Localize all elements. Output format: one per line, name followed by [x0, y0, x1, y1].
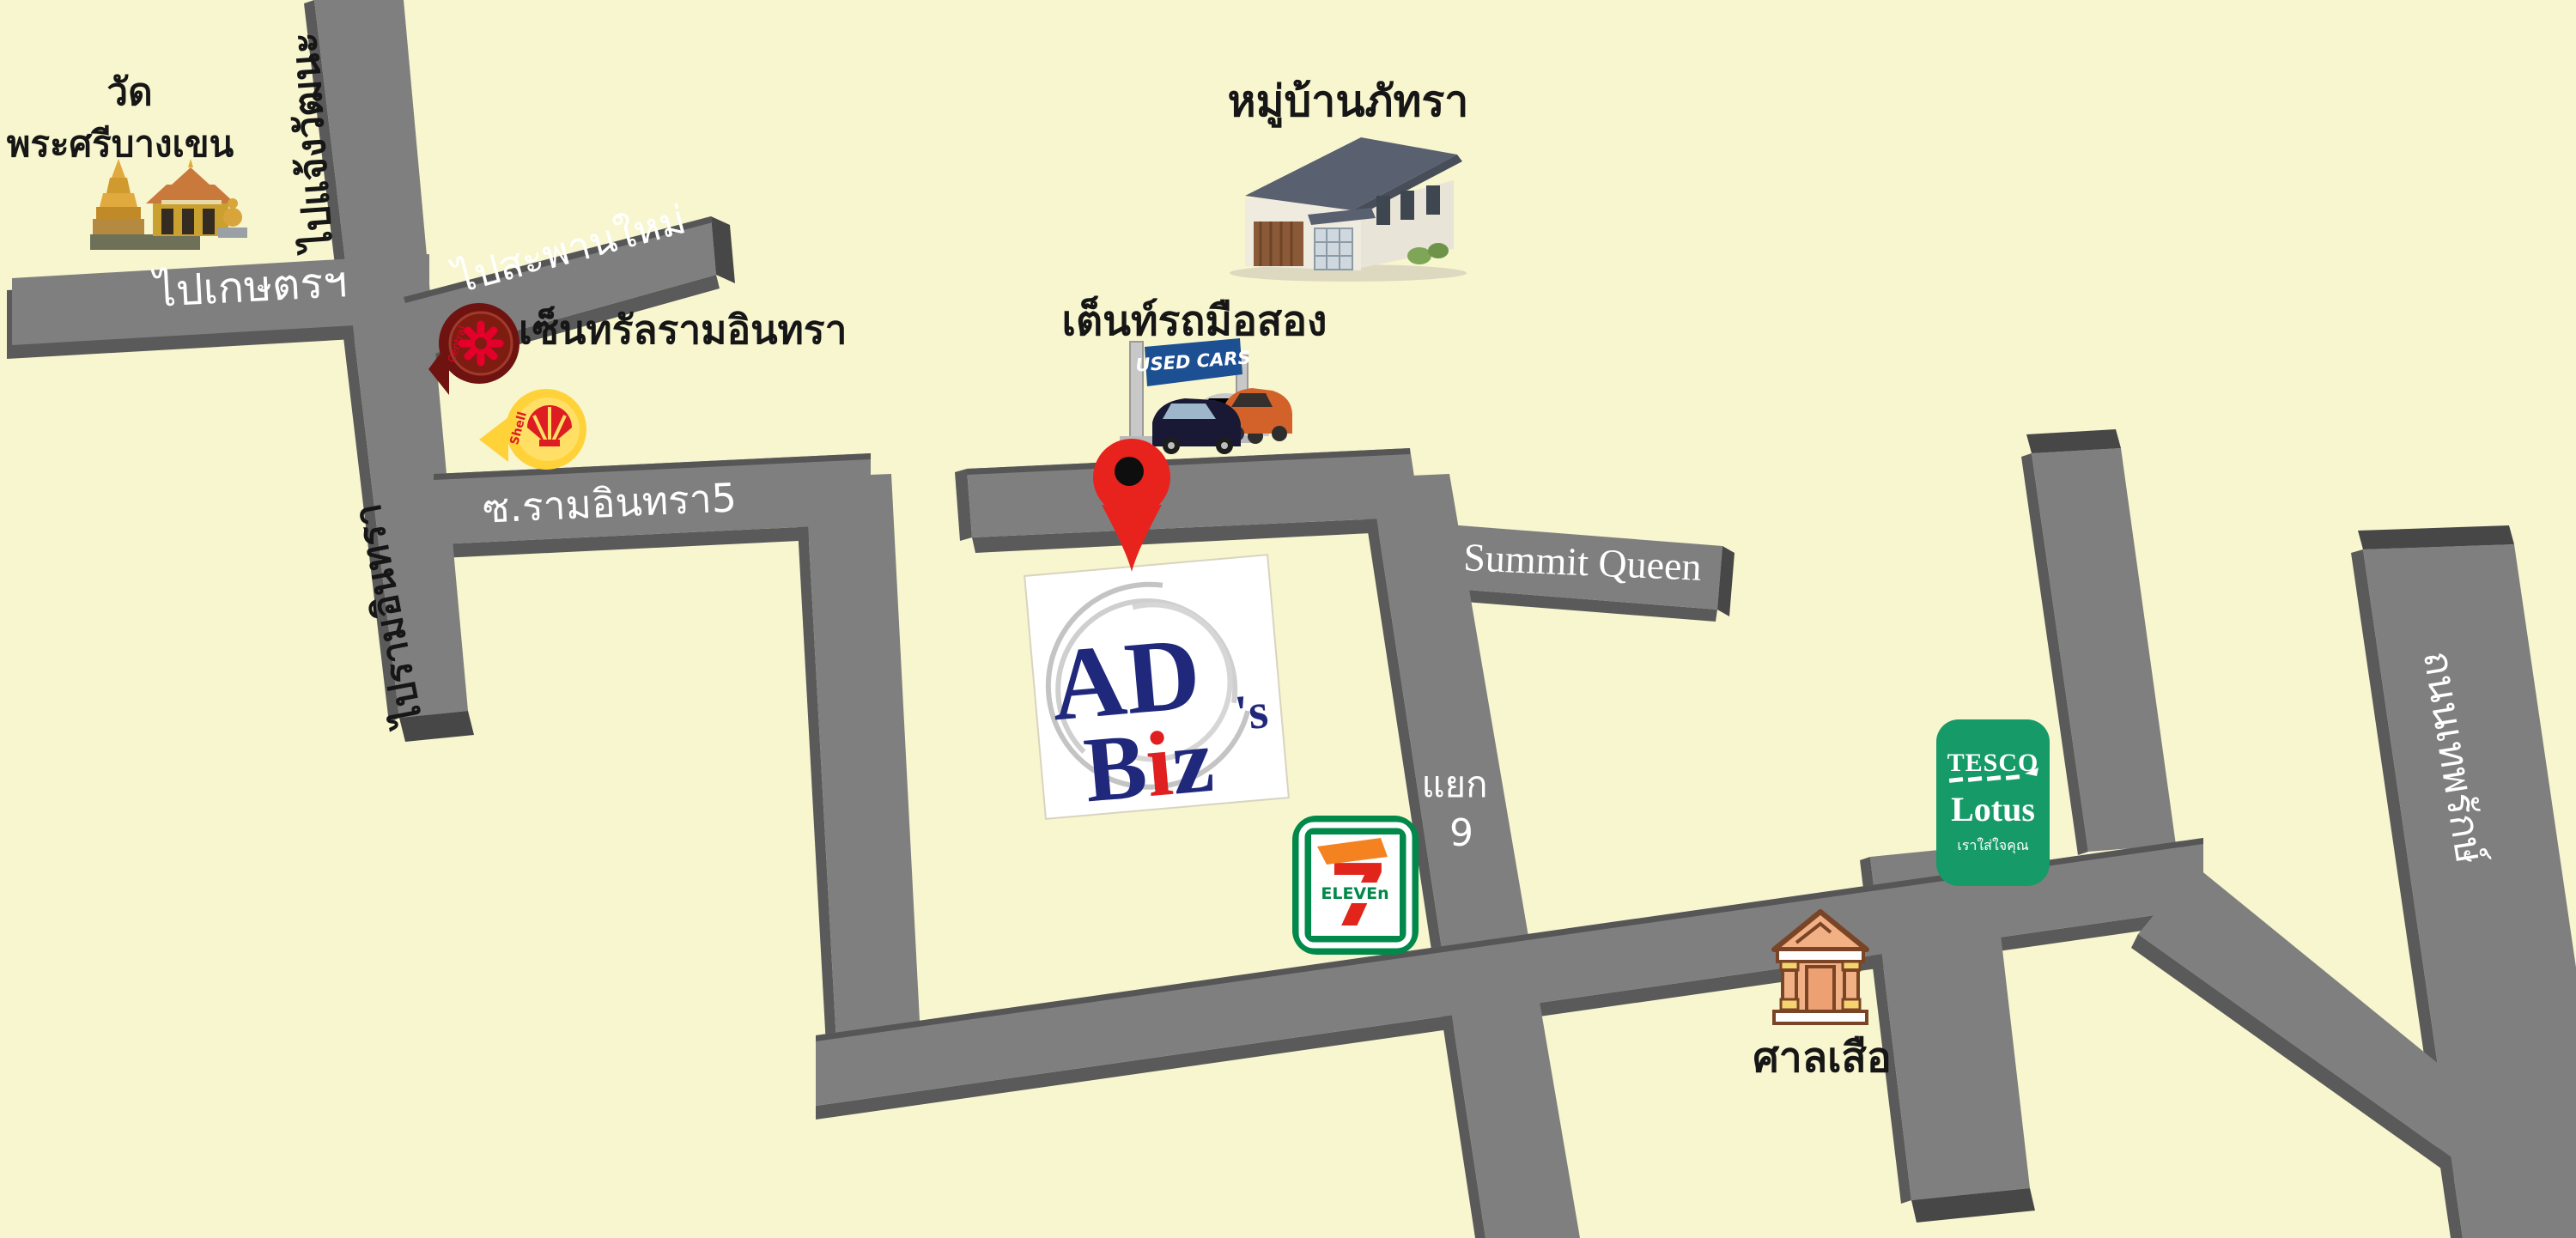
- seven-eleven-icon: 7 ELEVEn: [1292, 816, 1419, 955]
- eleven-text: ELEVEn: [1321, 884, 1388, 903]
- lotus-text: Lotus: [1951, 790, 2035, 828]
- svg-text:Biz: Biz: [1080, 709, 1218, 822]
- house-icon: [1230, 137, 1467, 282]
- tesco-tagline: เราใส่ใจคุณ: [1957, 837, 2029, 854]
- label-village: หมู่บ้านภัทรา: [1228, 76, 1469, 128]
- label-used-car-tent: เต็นท์รถมือสอง: [1062, 295, 1327, 345]
- car-navy: [1152, 398, 1241, 454]
- used-cars-icon: USED CARS: [1120, 338, 1292, 454]
- label-central: เซ็นทรัลรามอินทรา: [519, 306, 847, 353]
- label-yaek: แยก: [1421, 763, 1487, 805]
- label-to-kaset: ไปเกษตรฯ: [149, 257, 348, 317]
- adsbiz-text-s: 's: [1232, 683, 1270, 741]
- label-yaek-9: 9: [1449, 811, 1473, 855]
- label-temple-line1: วัด: [106, 70, 152, 114]
- temple-icon: [90, 159, 247, 250]
- label-temple-line2: พระศรีบางเขน: [7, 123, 234, 165]
- adsbiz-logo: AD 's Biz: [1009, 545, 1291, 827]
- shell-icon: Shell: [479, 389, 586, 470]
- map-canvas: ไปเกษตรฯ ไปสะพานใหม่ ไปแจ้งวัฒนะ ไปรามอิ…: [0, 0, 2576, 1238]
- adsbiz-text-b: B: [1080, 715, 1151, 822]
- tesco-lotus-icon: TESCO Lotus เราใส่ใจคุณ: [1936, 719, 2050, 886]
- pin-icon: [1093, 439, 1170, 572]
- tesco-text: TESCO: [1947, 749, 2039, 777]
- label-tiger-shrine: ศาลเสือ: [1753, 1034, 1891, 1082]
